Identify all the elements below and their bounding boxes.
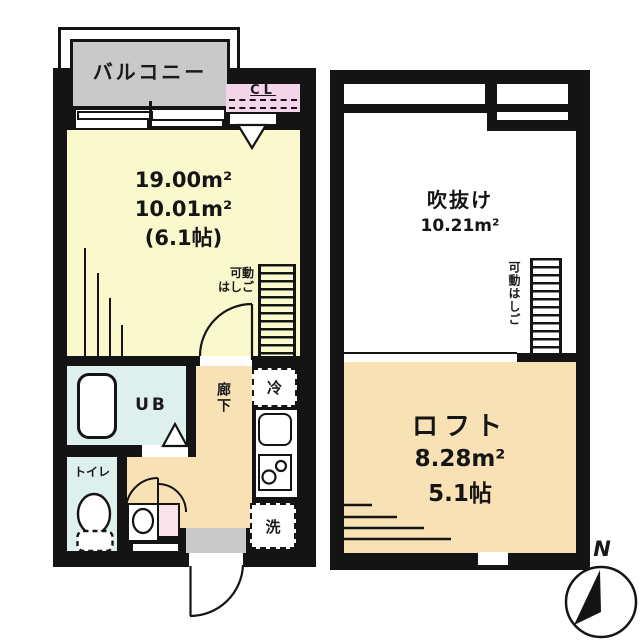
washstand-counter [159, 503, 180, 538]
closet-pole-dashes [229, 107, 297, 109]
void-area-label: 10.21m² [344, 216, 576, 236]
hallway [127, 457, 196, 503]
ladder-icon [530, 258, 562, 353]
main-room-door-opening [200, 356, 252, 366]
washing-machine: 洗 [250, 503, 296, 549]
fridge-label: 冷 [267, 377, 282, 398]
washstand [127, 503, 159, 542]
void-labels: 吹抜け 10.21m² [344, 184, 576, 236]
entrance-door-opening [189, 553, 243, 567]
closet-label: CL [226, 84, 300, 98]
kitchen-sink-icon [258, 413, 292, 446]
balcony: バルコニー [70, 39, 230, 109]
loft-labels: ロフト 8.28m² 5.1帖 [344, 406, 576, 508]
loft-area-label: 8.28m² [344, 446, 576, 472]
stove-icon [258, 454, 292, 491]
bathtub-icon [77, 373, 117, 439]
window-pane-right [147, 119, 224, 128]
floor-plan-canvas: バルコニー CL 19.00m² 10.01m² (6.1帖) 可動 はしご U… [0, 0, 640, 640]
toilet-label: トイレ [65, 463, 119, 480]
area-room: 10.01m² [67, 195, 300, 224]
closet-pole-dashes [229, 99, 297, 101]
hallway [180, 503, 196, 528]
loft-window [497, 84, 568, 104]
loft-label: ロフト [344, 406, 576, 443]
window-pane-left [77, 111, 153, 120]
compass-icon [566, 567, 636, 637]
compass-north-label: N [586, 537, 618, 561]
hallway-label: 廊下 [213, 382, 233, 444]
washer-label: 洗 [265, 516, 280, 537]
void-label: 吹抜け [344, 184, 576, 213]
threshold-window [133, 544, 178, 551]
area-jo: (6.1帖) [67, 224, 300, 253]
area-total: 19.00m² [67, 166, 300, 195]
unit-bath-label: UB [117, 395, 186, 415]
loft-window-sill [497, 112, 568, 120]
closet-door [228, 112, 278, 126]
ladder-icon [258, 264, 296, 356]
door-swing-entrance [190, 565, 243, 616]
closet: CL [226, 84, 300, 112]
loft-window [344, 84, 485, 104]
entrance-genkan [186, 528, 246, 553]
loft-ladder-label: 可動はしご [506, 261, 523, 356]
balcony-label: バルコニー [73, 56, 227, 85]
loft-wall-vent [478, 552, 508, 565]
fridge: 冷 [252, 368, 297, 407]
loft-railing-opening [344, 352, 517, 362]
ladder-label: 可動 はしご [198, 266, 256, 294]
unit-bath-door-opening [142, 445, 188, 457]
loft-size-label: 5.1帖 [344, 474, 576, 508]
main-room-areas: 19.00m² 10.01m² (6.1帖) [67, 166, 300, 253]
